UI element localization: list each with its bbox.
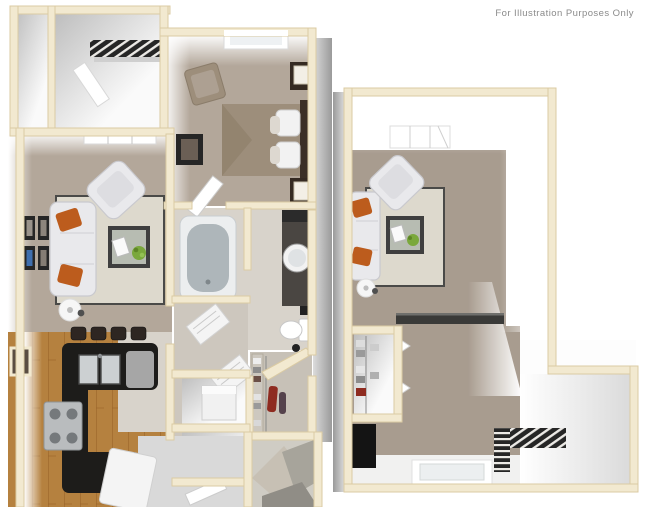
disclaimer-text: For Illustration Purposes Only: [495, 8, 634, 19]
dishwasher: [126, 351, 154, 388]
red-item: [356, 388, 366, 396]
coffee-table: [108, 226, 150, 268]
right-side-wall-face: [500, 96, 548, 332]
window-frame: [224, 30, 288, 36]
garment: [279, 392, 286, 414]
right-unit-floorplan: [333, 88, 638, 492]
plant: [132, 246, 146, 260]
bathtub: [180, 216, 236, 300]
washer: [202, 386, 236, 420]
wall-picture: [176, 134, 203, 165]
floorplan-render: [0, 0, 650, 507]
ceiling-vent: [390, 126, 450, 148]
bottom-window: [412, 460, 492, 484]
sofa: [350, 192, 380, 280]
right-closet: [348, 326, 410, 422]
sofa: [50, 202, 96, 296]
bed: [222, 100, 312, 178]
trash-bin: [292, 344, 300, 352]
staircase-grate: [90, 40, 162, 62]
stair-landing-floor: [54, 12, 166, 130]
plant: [407, 234, 419, 246]
floorplan-page: For Illustration Purposes Only: [0, 0, 650, 507]
coffee-table: [386, 216, 424, 254]
left-unit-floorplan: [8, 6, 332, 507]
breakfast-bar: [396, 313, 504, 324]
stove: [44, 402, 82, 450]
dark-cabinet: [350, 424, 376, 468]
